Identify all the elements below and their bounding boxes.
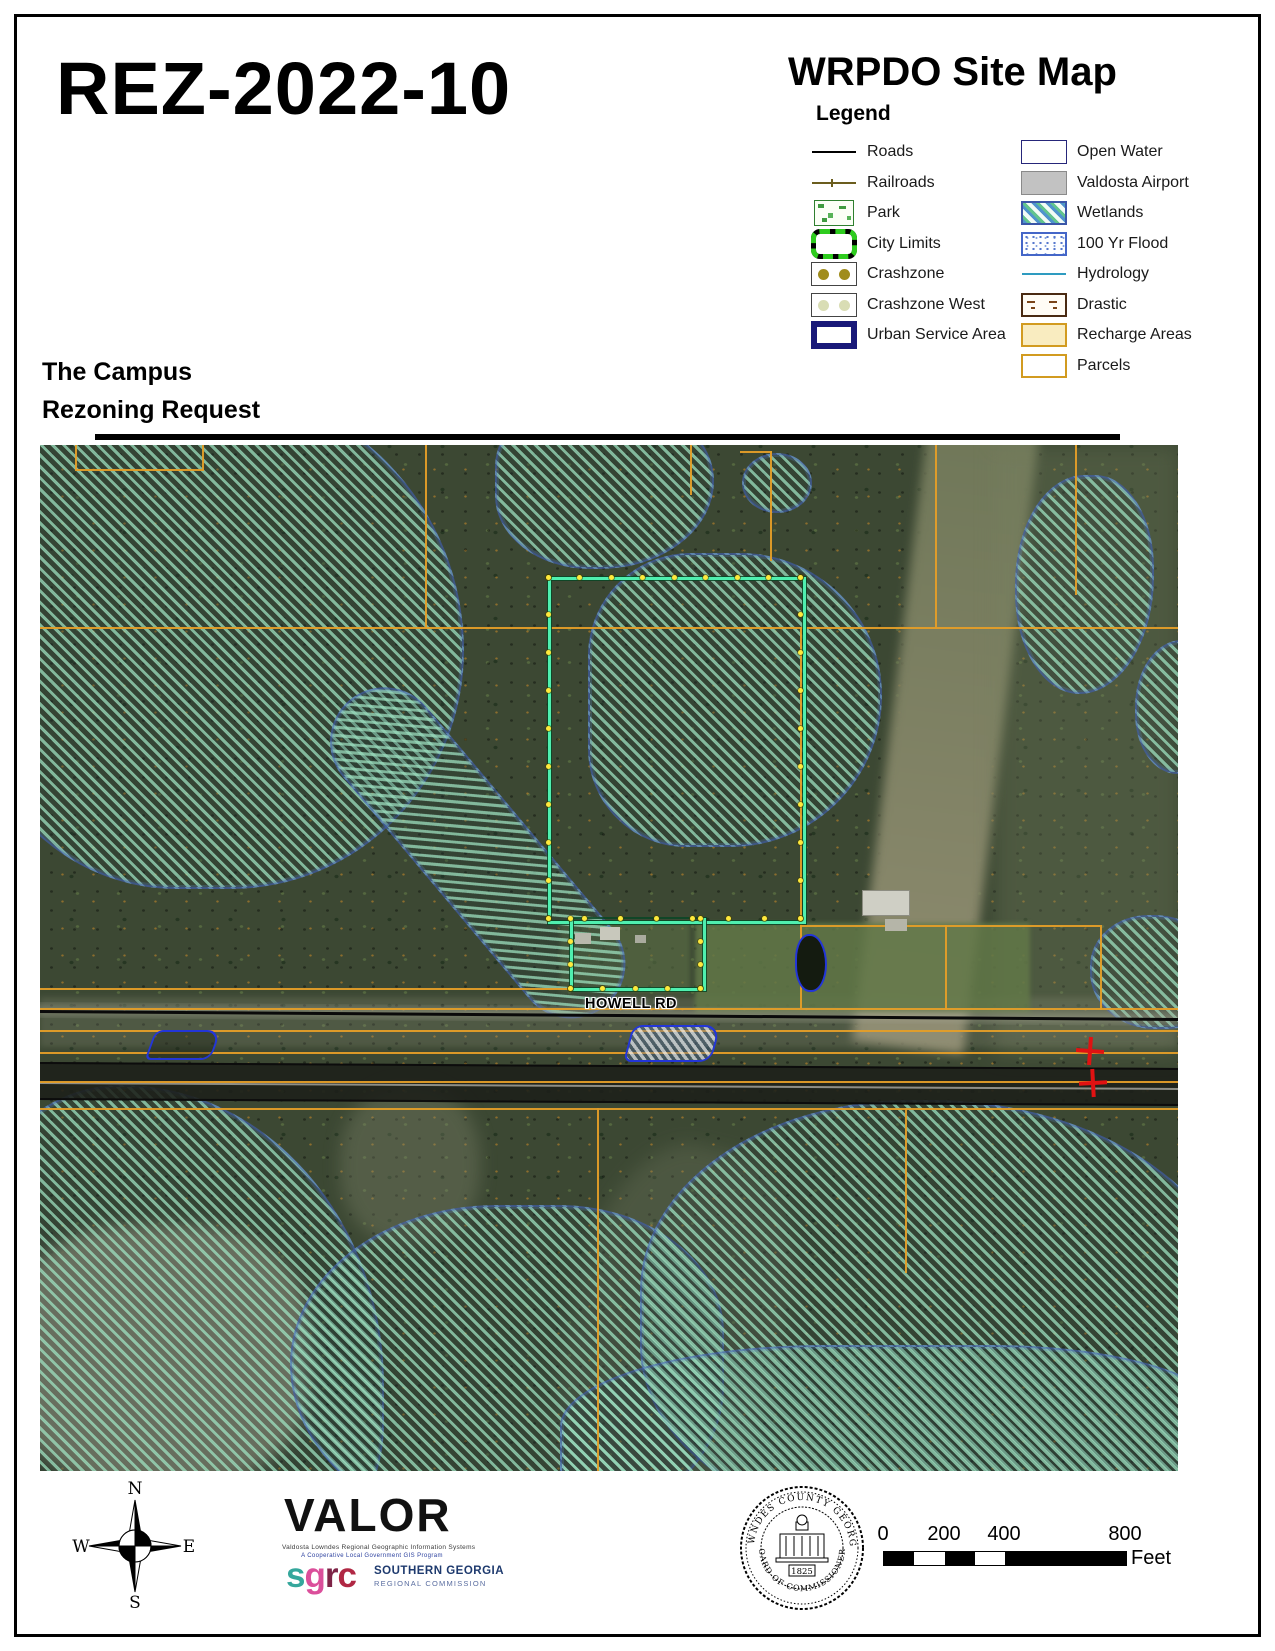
flood-swatch	[1020, 229, 1068, 259]
parcel-line	[800, 925, 1100, 927]
page-title: REZ-2022-10	[56, 46, 511, 131]
legend-item-wetlands: Wetlands	[1020, 198, 1192, 229]
legend-item-hydrology: Hydrology	[1020, 259, 1192, 290]
legend-right-column: Open WaterValdosta AirportWetlands100 Yr…	[1020, 137, 1192, 381]
sgrc-letter-g: g	[304, 1556, 324, 1595]
openwater-swatch	[1020, 137, 1068, 167]
wetland-area	[495, 445, 714, 569]
valor-logo: VALOR	[284, 1488, 452, 1542]
crosshair-marker	[1075, 1036, 1105, 1066]
compass-north-label: N	[128, 1479, 143, 1499]
citylimits-swatch	[810, 229, 858, 259]
legend-item-drastic: Drastic	[1020, 290, 1192, 321]
parcel-line	[935, 445, 937, 627]
parcels-swatch	[1020, 351, 1068, 381]
legend-item-crashzone: Crashzone	[810, 259, 1006, 290]
road-label: HOWELL RD	[585, 996, 677, 1012]
county-seal: LOWNDES COUNTY GEORGIA BOARD OF COMMISSI…	[738, 1484, 866, 1612]
sgrc-name-line1: SOUTHERN GEORGIA	[374, 1565, 504, 1577]
recharge-swatch	[1020, 320, 1068, 350]
parcel-line	[40, 1081, 1178, 1083]
flood-polygon	[145, 1030, 222, 1060]
legend-item-label: Railroads	[867, 174, 935, 192]
legend-item-railroads: Railroads	[810, 168, 1006, 199]
divider-rule	[95, 434, 1120, 440]
legend-item-openwater: Open Water	[1020, 137, 1192, 168]
legend-item-label: 100 Yr Flood	[1077, 235, 1168, 253]
north-arrow: N E S W	[72, 1478, 198, 1610]
hydrology-swatch	[1020, 259, 1068, 289]
legend-item-label: Park	[867, 204, 900, 222]
scalebar-tick-label: 800	[1108, 1523, 1141, 1546]
valor-tagline: Valdosta Lowndes Regional Geographic Inf…	[282, 1544, 462, 1551]
legend-item-label: Urban Service Area	[867, 326, 1006, 344]
parcel-line	[40, 988, 570, 990]
legend-item-parcels: Parcels	[1020, 351, 1192, 382]
legend-item-roads: Roads	[810, 137, 1006, 168]
scalebar-tick-label: 0	[877, 1523, 888, 1546]
parcel-line	[40, 1108, 1178, 1110]
legend-item-park: Park	[810, 198, 1006, 229]
subject-parcel-extension[interactable]	[570, 918, 706, 991]
legend-item-label: Hydrology	[1077, 265, 1149, 283]
map-sheet: REZ-2022-10 WRPDO Site Map Legend RoadsR…	[0, 0, 1275, 1651]
building	[885, 919, 907, 931]
legend-item-label: City Limits	[867, 235, 941, 253]
parcel-line	[770, 451, 772, 561]
map-title: WRPDO Site Map	[788, 50, 1117, 95]
legend-item-flood: 100 Yr Flood	[1020, 229, 1192, 260]
scalebar-unit: Feet	[1131, 1547, 1171, 1570]
scalebar-tick-label: 400	[987, 1523, 1020, 1546]
request-name: The Campus	[42, 358, 192, 387]
usa-swatch	[810, 320, 858, 350]
compass-south-label: S	[129, 1593, 141, 1610]
parcel-line	[597, 1108, 599, 1471]
scalebar-ticks: 0200400800	[883, 1523, 1143, 1547]
legend-heading: Legend	[816, 102, 891, 126]
legend-item-label: Parcels	[1077, 357, 1130, 375]
parcel-line	[1100, 925, 1102, 1010]
legend-item-label: Open Water	[1077, 143, 1163, 161]
parcel-line	[945, 925, 947, 1010]
legend-item-recharge: Recharge Areas	[1020, 320, 1192, 351]
compass-east-label: E	[183, 1537, 195, 1557]
legend-left-column: RoadsRailroadsParkCity LimitsCrashzoneCr…	[810, 137, 1006, 351]
legend-item-label: Recharge Areas	[1077, 326, 1192, 344]
railroad-corridor	[40, 1062, 1178, 1106]
scalebar	[883, 1551, 1127, 1566]
park-swatch	[810, 198, 858, 228]
legend-item-usa: Urban Service Area	[810, 320, 1006, 351]
legend-item-label: Crashzone West	[867, 296, 985, 314]
wetland-area	[742, 453, 812, 513]
sgrc-logo: sgrc	[286, 1556, 356, 1596]
legend-item-citylimits: City Limits	[810, 229, 1006, 260]
legend-item-label: Roads	[867, 143, 913, 161]
grass-field	[695, 923, 1030, 1013]
crashzonewest-swatch	[810, 290, 858, 320]
compass-west-label: W	[72, 1537, 90, 1557]
parcel-line	[740, 451, 772, 453]
aerial-map[interactable]: HOWELL RD	[40, 445, 1178, 1471]
parcel-line	[1075, 445, 1077, 595]
legend-item-label: Drastic	[1077, 296, 1127, 314]
legend-item-airport: Valdosta Airport	[1020, 168, 1192, 199]
sgrc-name-line2: REGIONAL COMMISSION	[374, 1579, 487, 1588]
wetland-area	[560, 1345, 1178, 1471]
seal-year: 1825	[791, 1567, 813, 1577]
subject-parcel[interactable]	[548, 577, 806, 924]
crosshair-marker	[1078, 1068, 1107, 1097]
building	[862, 890, 910, 916]
crashzone-swatch	[810, 259, 858, 289]
pond	[795, 934, 827, 992]
drastic-swatch	[1020, 290, 1068, 320]
parcel-line	[905, 1108, 907, 1273]
request-type: Rezoning Request	[42, 396, 260, 425]
sgrc-letter-r: r	[325, 1556, 338, 1595]
legend-item-crashzonewest: Crashzone West	[810, 290, 1006, 321]
railroads-swatch	[810, 168, 858, 198]
roads-swatch	[810, 137, 858, 167]
legend-item-label: Valdosta Airport	[1077, 174, 1189, 192]
sgrc-letter-c: c	[337, 1556, 355, 1595]
legend-item-label: Wetlands	[1077, 204, 1143, 222]
airport-swatch	[1020, 168, 1068, 198]
wetlands-swatch	[1020, 198, 1068, 228]
parcel-line	[75, 445, 204, 471]
parcel-line	[690, 445, 692, 495]
scalebar-tick-label: 200	[927, 1523, 960, 1546]
parcel-line	[425, 445, 427, 627]
flood-polygon	[623, 1025, 721, 1062]
sgrc-letter-s: s	[286, 1556, 304, 1595]
legend-item-label: Crashzone	[867, 265, 944, 283]
